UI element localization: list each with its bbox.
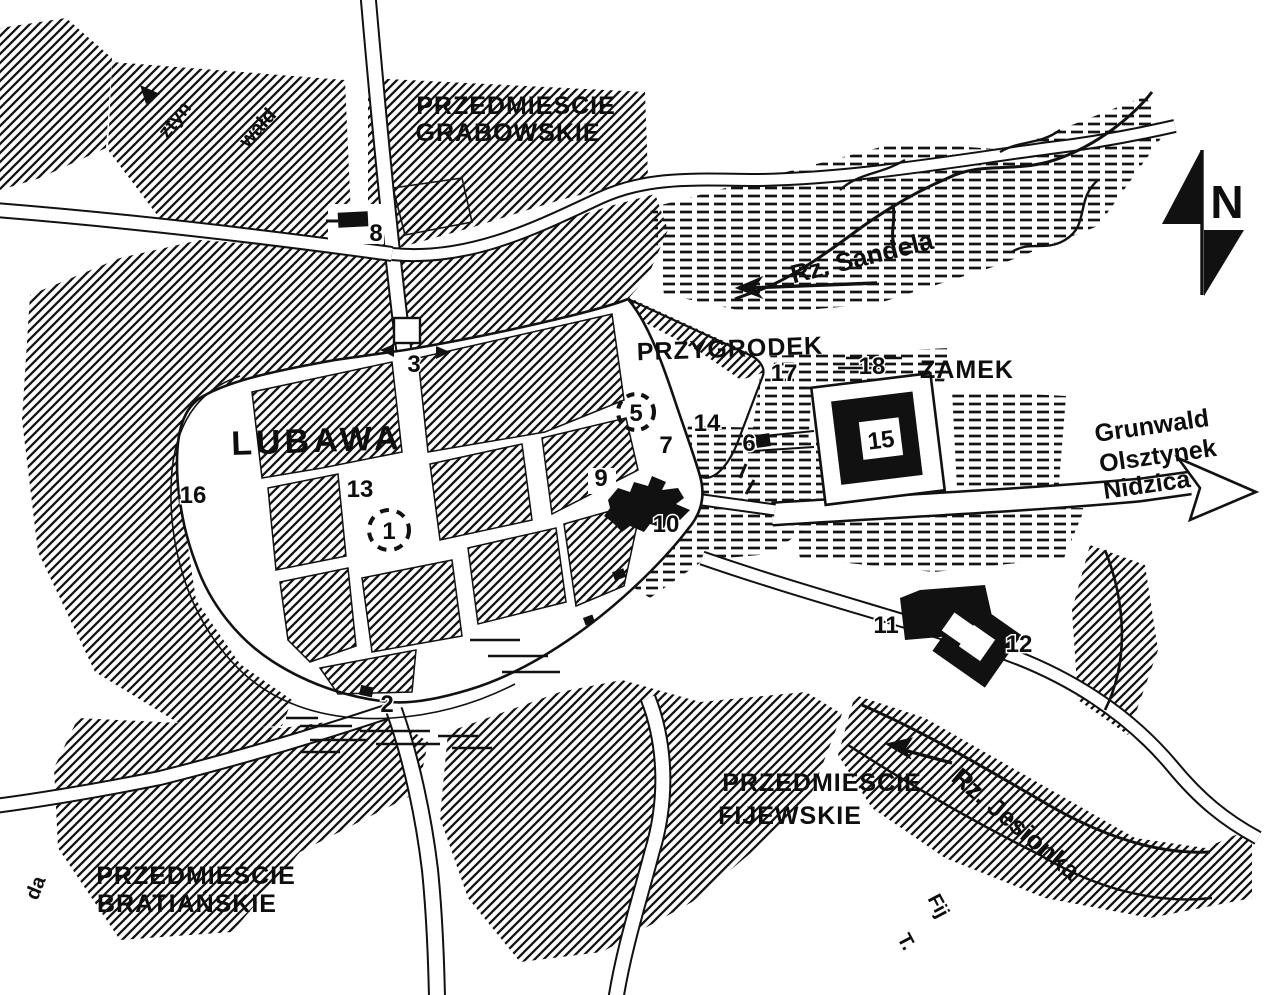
road-south bbox=[394, 710, 437, 995]
label-grabowskie-line1: PRZEDMIEŚCIE bbox=[416, 90, 616, 120]
map-canvas: N PRZEDMIEŚCIE GRABOWSKIE LUBAWA PRZYGRO… bbox=[0, 0, 1280, 995]
marker-2: 2 bbox=[380, 691, 393, 718]
marker-13: 13 bbox=[347, 476, 374, 503]
marker-12: 12 bbox=[1006, 631, 1033, 658]
label-edge-t: T. bbox=[893, 930, 920, 954]
label-grabowskie-line2: GRABOWSKIE bbox=[416, 119, 601, 147]
marker-18: 18 bbox=[859, 353, 886, 380]
marker-17: 17 bbox=[771, 360, 798, 387]
marker-5: 5 bbox=[629, 400, 642, 427]
label-edge-fij: Fij bbox=[923, 891, 953, 922]
building-8 bbox=[338, 211, 369, 228]
marker-8: 8 bbox=[369, 220, 382, 247]
marker-6: 6 bbox=[742, 430, 755, 457]
north-arrow: N bbox=[1162, 150, 1244, 296]
marker-1: 1 bbox=[382, 518, 395, 545]
marker-15: 15 bbox=[866, 425, 896, 455]
label-lubawa: LUBAWA bbox=[231, 419, 404, 463]
lubawa-historical-town-plan: N PRZEDMIEŚCIE GRABOWSKIE LUBAWA PRZYGRO… bbox=[0, 0, 1280, 995]
marker-10: 10 bbox=[653, 511, 680, 538]
label-bratianskie-line2: BRATIAŃSKIE bbox=[97, 889, 277, 918]
marker-3: 3 bbox=[407, 351, 420, 378]
label-fijewskie-line2: FIJEWSKIE bbox=[718, 802, 862, 830]
marker-16: 16 bbox=[180, 482, 207, 509]
label-zamek: ZAMEK bbox=[920, 356, 1014, 384]
label-edge-da: da bbox=[21, 872, 50, 903]
marker-9: 9 bbox=[594, 465, 607, 492]
marker-11: 11 bbox=[873, 612, 898, 639]
label-bratianskie-line1: PRZEDMIEŚCIE bbox=[96, 860, 296, 890]
marker-7: 7 bbox=[659, 432, 672, 459]
marker-14: 14 bbox=[694, 410, 721, 437]
label-fijewskie-line1: PRZEDMIEŚCIE bbox=[722, 767, 922, 797]
compass-n-label: N bbox=[1210, 176, 1243, 228]
